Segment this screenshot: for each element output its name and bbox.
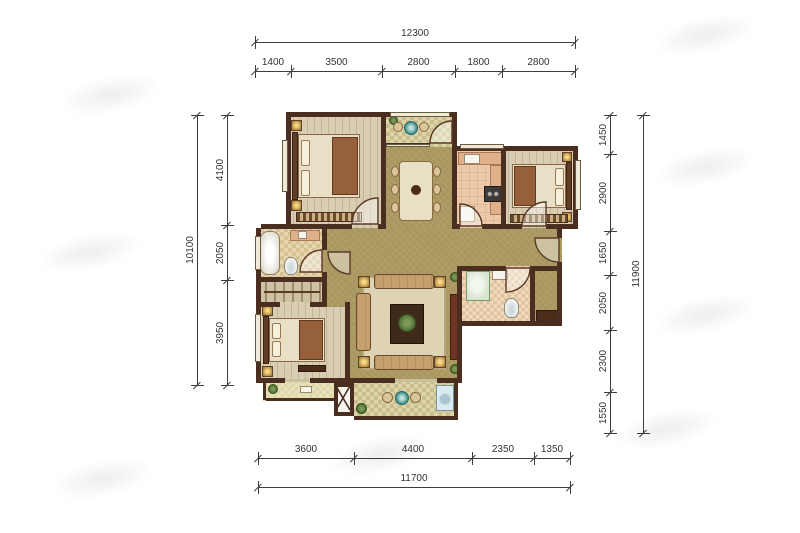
dim-top-segment: 3500 bbox=[315, 57, 359, 68]
dim-top-segment: 2800 bbox=[397, 57, 441, 68]
dim-top-total: 12300 bbox=[393, 28, 437, 39]
dim-right-segment: 2900 bbox=[598, 171, 608, 215]
dim-left-segment: 3950 bbox=[215, 311, 225, 355]
dimension-line bbox=[643, 115, 644, 433]
dim-right-segment: 2300 bbox=[598, 339, 608, 383]
floor-plan-canvas: 1230014003500280018002800101004100205039… bbox=[0, 0, 800, 533]
dim-right-segment: 1550 bbox=[598, 391, 608, 435]
dim-top-segment: 1800 bbox=[457, 57, 501, 68]
dim-top-segment: 2800 bbox=[517, 57, 561, 68]
dim-bottom-total: 11700 bbox=[392, 473, 436, 484]
dim-top-segment: 1400 bbox=[251, 57, 295, 68]
dim-bottom-segment: 2350 bbox=[481, 444, 525, 455]
dim-left-segment: 4100 bbox=[215, 148, 225, 192]
dim-right-segment: 1650 bbox=[598, 231, 608, 275]
dim-right-total: 11900 bbox=[631, 252, 641, 296]
dim-left-segment: 2050 bbox=[215, 231, 225, 275]
dimension-line bbox=[255, 71, 575, 72]
dimension-line bbox=[258, 487, 570, 488]
dim-left-total: 10100 bbox=[185, 228, 195, 272]
dim-bottom-segment: 1350 bbox=[530, 444, 574, 455]
dimension-line bbox=[197, 115, 198, 385]
dim-bottom-segment: 3600 bbox=[284, 444, 328, 455]
dim-right-segment: 2050 bbox=[598, 281, 608, 325]
dim-bottom-segment: 4400 bbox=[391, 444, 435, 455]
dimension-line bbox=[227, 115, 228, 385]
dimension-line bbox=[258, 458, 570, 459]
dimension-line bbox=[255, 42, 575, 43]
dim-right-segment: 1450 bbox=[598, 113, 608, 157]
dimension-layer: 1230014003500280018002800101004100205039… bbox=[0, 0, 800, 533]
